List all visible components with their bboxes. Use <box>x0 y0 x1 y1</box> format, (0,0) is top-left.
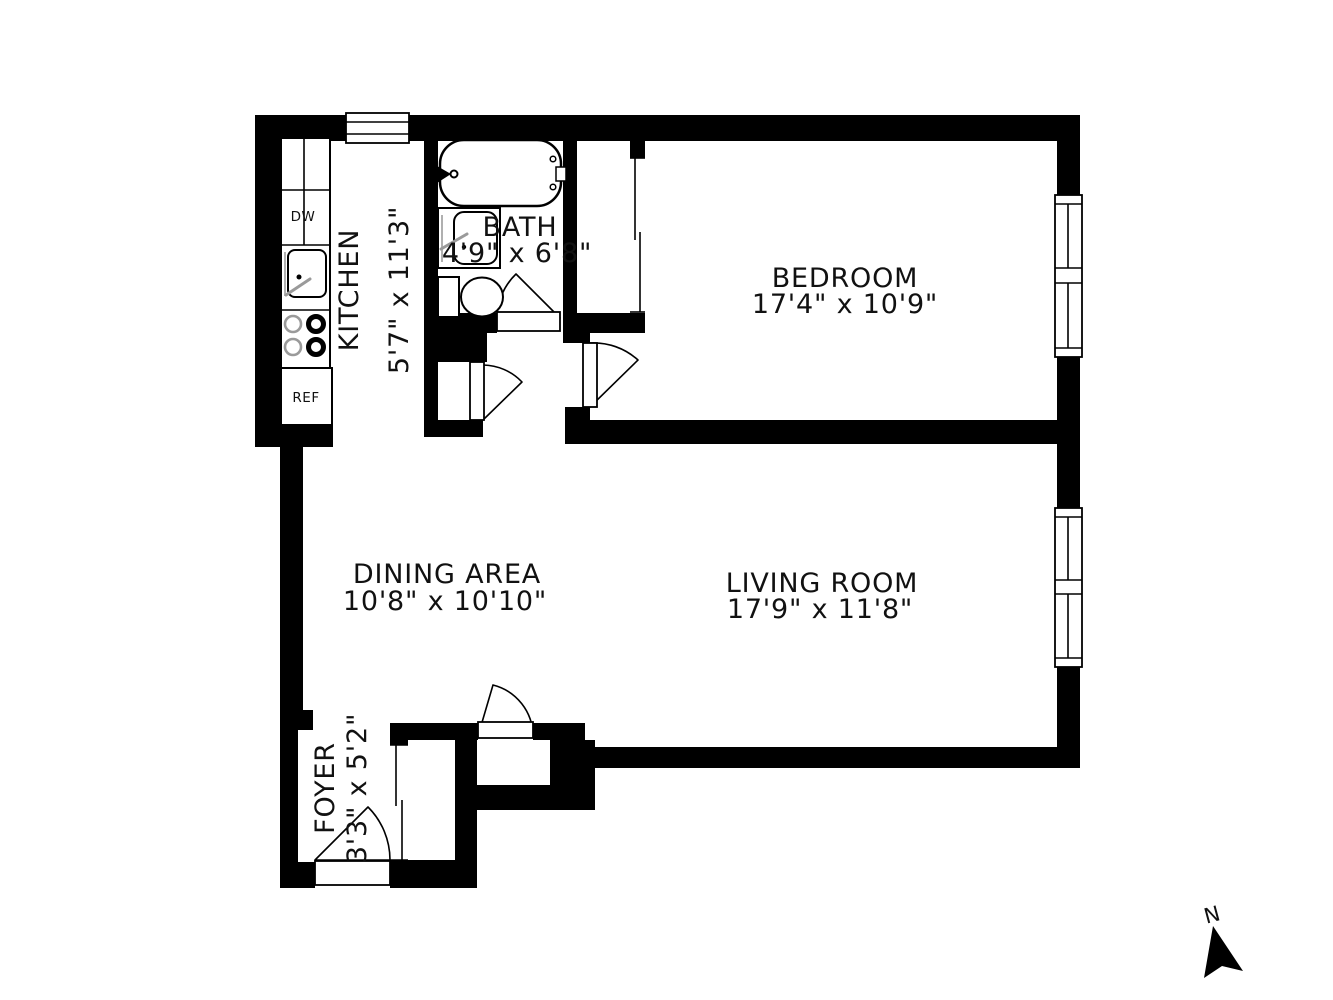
north-arrow-icon: N <box>1201 901 1243 978</box>
living-room-label: LIVING ROOM 17'9" x 11'8" <box>726 568 919 625</box>
room-name: KITCHEN <box>334 229 365 352</box>
wall-segment <box>571 420 1080 444</box>
room-name: FOYER <box>310 742 341 834</box>
dining-area-label: DINING AREA 10'8" x 10'10" <box>343 559 547 617</box>
kitchen-sink <box>285 250 326 297</box>
walls <box>255 115 1080 888</box>
wall-segment <box>280 423 303 730</box>
wall-segment <box>630 141 645 158</box>
bedroom-window <box>1055 195 1082 357</box>
room-dims: 4'9" x 6'8" <box>442 238 592 269</box>
bath-door <box>497 274 560 331</box>
dining-closet-door <box>478 685 533 738</box>
floor-plan-drawing: DW REF KITCHEN 5'7" x 1 <box>0 0 1333 1000</box>
floor-plan-page: DW REF KITCHEN 5'7" x 1 <box>0 0 1333 1000</box>
north-label: N <box>1201 901 1222 928</box>
wall-segment <box>565 407 590 444</box>
wall-segment <box>424 420 483 437</box>
room-dims: 17'4" x 10'9" <box>752 289 938 320</box>
wall-segment <box>255 115 281 447</box>
bathtub <box>429 140 566 206</box>
foyer-closet-sliding-door <box>390 745 408 860</box>
wall-segment <box>550 747 1080 768</box>
kitchen-window <box>346 113 409 143</box>
wall-segment <box>280 862 315 888</box>
bedroom-door <box>583 343 638 407</box>
room-dims: 10'8" x 10'10" <box>343 586 547 617</box>
hall-closet-door <box>470 362 522 420</box>
wall-segment <box>533 723 585 740</box>
dishwasher-label: DW <box>291 209 316 225</box>
room-dims: 17'9" x 11'8" <box>727 594 913 625</box>
bedroom-label: BEDROOM 17'4" x 10'9" <box>752 263 938 320</box>
living-room-window <box>1055 508 1082 667</box>
wall-segment <box>280 710 313 730</box>
wall-segment <box>563 313 645 333</box>
toilet <box>438 277 503 317</box>
kitchen-label: KITCHEN 5'7" x 11'3" <box>334 206 415 374</box>
bedroom-closet-sliding-door <box>630 158 645 312</box>
refrigerator-label: REF <box>292 390 319 406</box>
room-dims: 5'7" x 11'3" <box>384 206 415 374</box>
foyer-label: FOYER 3'3" x 5'2" <box>310 713 373 863</box>
room-dims: 3'3" x 5'2" <box>342 713 373 863</box>
wall-segment <box>438 333 487 362</box>
